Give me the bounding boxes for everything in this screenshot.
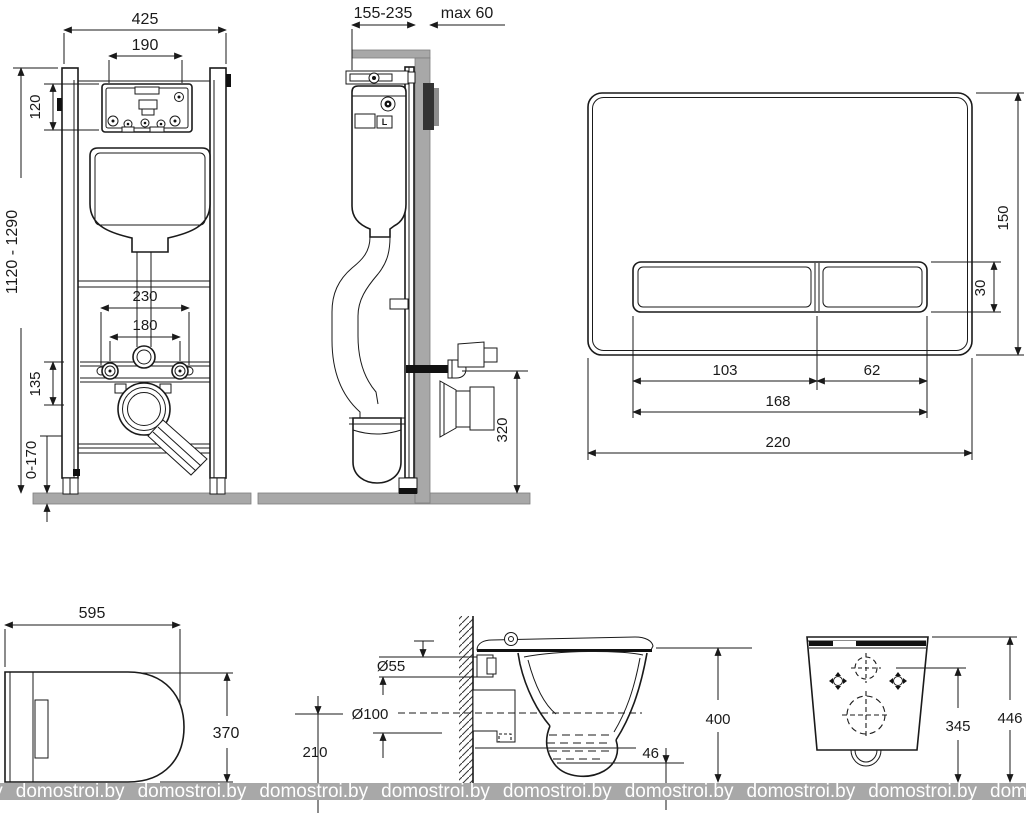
dim-right-button-width: 62 xyxy=(864,362,881,379)
concealed-cistern-side: L xyxy=(352,86,406,237)
dim-frame-width: 425 xyxy=(132,11,159,28)
watermark-text: domostroi.by xyxy=(16,783,125,800)
installation-frame-front-view: 425 190 120 1120 - 1290 230 180 135 xyxy=(4,11,251,522)
dim-plate-width: 220 xyxy=(765,434,790,451)
dim-bottom-gap: 46 xyxy=(642,745,659,762)
dim-outlet-dia: Ø100 xyxy=(352,706,389,723)
dim-install-height: 1120 - 1290 xyxy=(4,210,21,294)
dim-left-button-width: 103 xyxy=(712,362,737,379)
dim-bowl-length: 595 xyxy=(79,605,106,622)
watermark-text: domostroi.by xyxy=(138,783,247,800)
valve-label: L xyxy=(382,117,388,127)
dim-bowl-width: 370 xyxy=(213,725,240,742)
watermark-text: domostroi.by xyxy=(381,783,490,800)
dim-inlet-dia: Ø55 xyxy=(377,658,405,675)
dim-leg-adjustment: 0-170 xyxy=(23,441,40,479)
dim-panel-height: 120 xyxy=(27,94,44,119)
flush-plate-body xyxy=(588,93,972,355)
waste-outlet-side xyxy=(440,381,494,437)
housing-shadow xyxy=(434,88,439,126)
dim-fixing-height: 345 xyxy=(945,718,970,735)
floor-side xyxy=(258,493,530,504)
watermark-text: domostroi.by xyxy=(259,783,368,800)
seat-hinge xyxy=(505,633,518,646)
installation-frame-side-view: L 155-23 xyxy=(258,5,530,504)
flush-bend-side xyxy=(332,237,408,483)
bowl-top-view: 595 370 xyxy=(5,605,239,782)
dim-wall-allowance: max 60 xyxy=(441,5,494,22)
dim-drain-offset: 135 xyxy=(27,371,44,396)
watermark-text: domostroi.by xyxy=(868,783,977,800)
dim-total-height: 446 xyxy=(997,710,1022,727)
dim-buttons-total-width: 168 xyxy=(765,393,790,410)
watermark-text: domostroi.by xyxy=(625,783,734,800)
flush-plate-housing-side xyxy=(423,83,434,130)
dim-button-height: 30 xyxy=(972,280,989,297)
toilet-seat-lid xyxy=(477,637,653,650)
watermark-text: domostroi.by xyxy=(503,783,612,800)
dim-outlet-height: 210 xyxy=(302,744,327,761)
bowl-back-view: 345 446 xyxy=(807,637,1023,782)
dim-fixing-outer: 230 xyxy=(132,288,157,305)
watermark-text: domostroi.by xyxy=(990,783,1026,800)
watermark-text: domostroi.by xyxy=(0,783,3,800)
dim-drain-height: 320 xyxy=(494,417,511,442)
dim-bowl-height: 400 xyxy=(705,711,730,728)
watermark-strip: domostroi.bydomostroi.bydomostroi.bydomo… xyxy=(0,783,1026,800)
top-rail xyxy=(352,50,430,58)
inspection-panel xyxy=(102,84,192,132)
bowl-profile xyxy=(518,651,647,776)
dim-plate-height: 150 xyxy=(995,205,1012,230)
dim-frame-depth: 155-235 xyxy=(354,5,413,22)
dim-opening-width: 190 xyxy=(132,37,159,54)
floor-front xyxy=(33,493,251,504)
technical-drawing-sheet: 425 190 120 1120 - 1290 230 180 135 xyxy=(0,0,1026,815)
dim-fixing-inner: 180 xyxy=(132,317,157,334)
drawing-canvas: 425 190 120 1120 - 1290 230 180 135 xyxy=(0,0,1026,815)
watermark-text: domostroi.by xyxy=(746,783,855,800)
waste-outlet-front xyxy=(115,383,207,475)
flush-plate-view: 150 30 103 62 168 220 xyxy=(588,93,1024,460)
wall-hatching xyxy=(459,616,473,783)
outlet-block xyxy=(473,690,515,742)
